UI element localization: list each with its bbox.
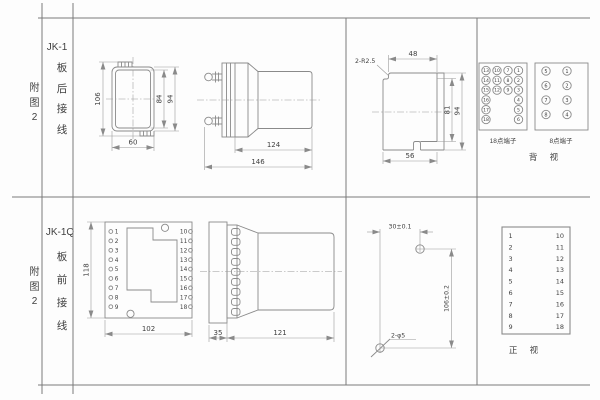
terminal-number: 4: [565, 112, 568, 118]
terminal-number: 14: [180, 267, 188, 273]
bottom-terminal-pins: [140, 131, 154, 136]
terminal-number: 2: [517, 78, 520, 84]
terminal-8-block: 5 1 6 2 7 3 8 4: [535, 63, 588, 130]
terminal-number: 3: [115, 248, 119, 254]
terminal-number: 13: [483, 68, 489, 74]
jk1q-side-view: 35 121: [200, 222, 342, 342]
terminal-number: 4: [509, 266, 513, 274]
terminal-number: 15: [180, 277, 188, 283]
terminal-number: 17: [556, 312, 564, 320]
terminal-18-block: 13 10 7 1 14 11 8 2 15 12 9 3 16 4 17 5 …: [479, 63, 527, 130]
cutout-outline: [383, 73, 444, 150]
terminal-number: 5: [544, 69, 547, 75]
terminal-number: 13: [180, 258, 188, 264]
top-terminal-pins: [118, 62, 132, 67]
dim-label: 106±0.2: [444, 285, 451, 312]
terminal-number: 5: [509, 278, 513, 286]
dim-label: 48: [409, 50, 418, 58]
hole-note: 2-φ5: [391, 333, 405, 340]
terminal-number: 3: [509, 255, 513, 263]
terminal-number: 16: [180, 286, 188, 292]
terminal-circles: [482, 66, 523, 123]
table-grid: [12, 3, 590, 394]
keyed-window: [127, 228, 177, 302]
terminal-number: 9: [115, 305, 119, 311]
terminal-number: 11: [180, 239, 188, 245]
jk1-rear-view: 106 84 94 60: [94, 57, 179, 151]
terminal-number: 4: [115, 258, 119, 264]
terminal-number: 7: [507, 68, 510, 74]
terminal-number: 6: [509, 289, 513, 297]
terminal-number: 2: [509, 243, 513, 251]
terminal-number: 2: [565, 83, 568, 89]
terminal-number: 12: [556, 255, 564, 263]
terminal-number: 11: [556, 243, 564, 251]
dim-label: 94: [167, 94, 175, 103]
dim-label: 84: [156, 94, 164, 103]
dim-label: 121: [273, 329, 286, 337]
terminal-number: 18: [483, 117, 489, 123]
terminal-number: 17: [180, 295, 188, 301]
dim-label: 35: [214, 329, 223, 337]
bottom-slot: [414, 142, 421, 151]
left-terminal-circles: [109, 230, 113, 309]
terminal-number: 3: [517, 88, 520, 94]
dim-label: 124: [267, 141, 281, 149]
terminal-number: 4: [517, 98, 520, 104]
dim-label: 146: [251, 158, 265, 166]
terminal-number: 16: [483, 98, 489, 104]
terminal-number: 9: [507, 88, 510, 94]
drawing-sheet: 附图2 JK-1 板后接线 附图2 JK-1Q 板前接线 18点端子 8点端子 …: [0, 0, 600, 400]
jk1q-drill-view: 30±0.1 106±0.2 2-φ5: [367, 224, 456, 358]
terminal-number: 17: [483, 107, 489, 113]
dim-label: 102: [142, 325, 155, 333]
jk1q-front-view: 1 2 3 4 5 6 7 8 9 10 11 12 13 14 15 16 1…: [83, 222, 193, 337]
terminal-number: 6: [517, 117, 520, 123]
terminal-number: 11: [494, 78, 500, 84]
terminal-number: 18: [180, 305, 188, 311]
terminal-number: 13: [556, 266, 564, 274]
dim-label: 60: [129, 139, 138, 147]
terminal-number: 10: [180, 230, 188, 236]
terminal-number: 15: [483, 88, 489, 94]
radius-note: 2-R2.5: [355, 58, 375, 65]
terminal-number: 10: [494, 68, 500, 74]
terminal-number: 16: [556, 300, 564, 308]
terminal-number: 6: [544, 83, 547, 89]
front-plate: [209, 222, 227, 323]
terminal-screw-bottom: [205, 116, 222, 127]
dim-label: 81: [444, 106, 452, 115]
mounting-hole: [127, 310, 134, 317]
terminal-number: 5: [115, 267, 119, 273]
terminal-number: 7: [544, 98, 547, 104]
terminal-number: 7: [509, 300, 513, 308]
terminal-number: 18: [556, 323, 564, 331]
jk1-side-view: 124 146: [197, 63, 322, 170]
dim-label: 118: [83, 263, 91, 276]
terminal-number: 2: [115, 239, 119, 245]
terminal-number: 14: [556, 278, 564, 286]
terminal-screw-top: [205, 72, 222, 83]
terminal-number: 5: [517, 107, 520, 113]
terminal-number: 9: [509, 323, 513, 331]
dim-label: 56: [406, 152, 415, 160]
terminal-number: 1: [565, 69, 568, 75]
terminal-number: 1: [115, 230, 119, 236]
terminal-number: 1: [509, 232, 513, 240]
terminal-number: 12: [494, 88, 500, 94]
terminal-number: 3: [565, 98, 568, 104]
terminal-number: 6: [115, 277, 119, 283]
terminal-lugs: [232, 229, 241, 316]
dim-label: 106: [94, 92, 102, 106]
drawing-canvas: 106 84 94 60: [0, 0, 600, 400]
terminal-number: 15: [556, 289, 564, 297]
terminal-number: 8: [509, 312, 513, 320]
dim-label: 94: [454, 106, 462, 115]
terminal-number: 1: [517, 68, 520, 74]
terminal-number: 12: [180, 248, 188, 254]
terminal-number: 14: [483, 78, 489, 84]
terminal-number: 10: [556, 232, 564, 240]
terminal-number: 7: [115, 286, 119, 292]
dim-label: 30±0.1: [389, 224, 412, 231]
jk1-cutout-view: 2-R2.5 48 81 94 56: [355, 50, 466, 164]
terminal-front-panel: 1 2 3 4 5 6 7 8 9 10 11 12 13 14 15 16 1…: [502, 227, 570, 334]
mounting-hole: [161, 224, 168, 231]
terminal-number: 8: [115, 295, 119, 301]
terminal-number: 8: [544, 112, 547, 118]
terminal-number: 8: [507, 78, 510, 84]
